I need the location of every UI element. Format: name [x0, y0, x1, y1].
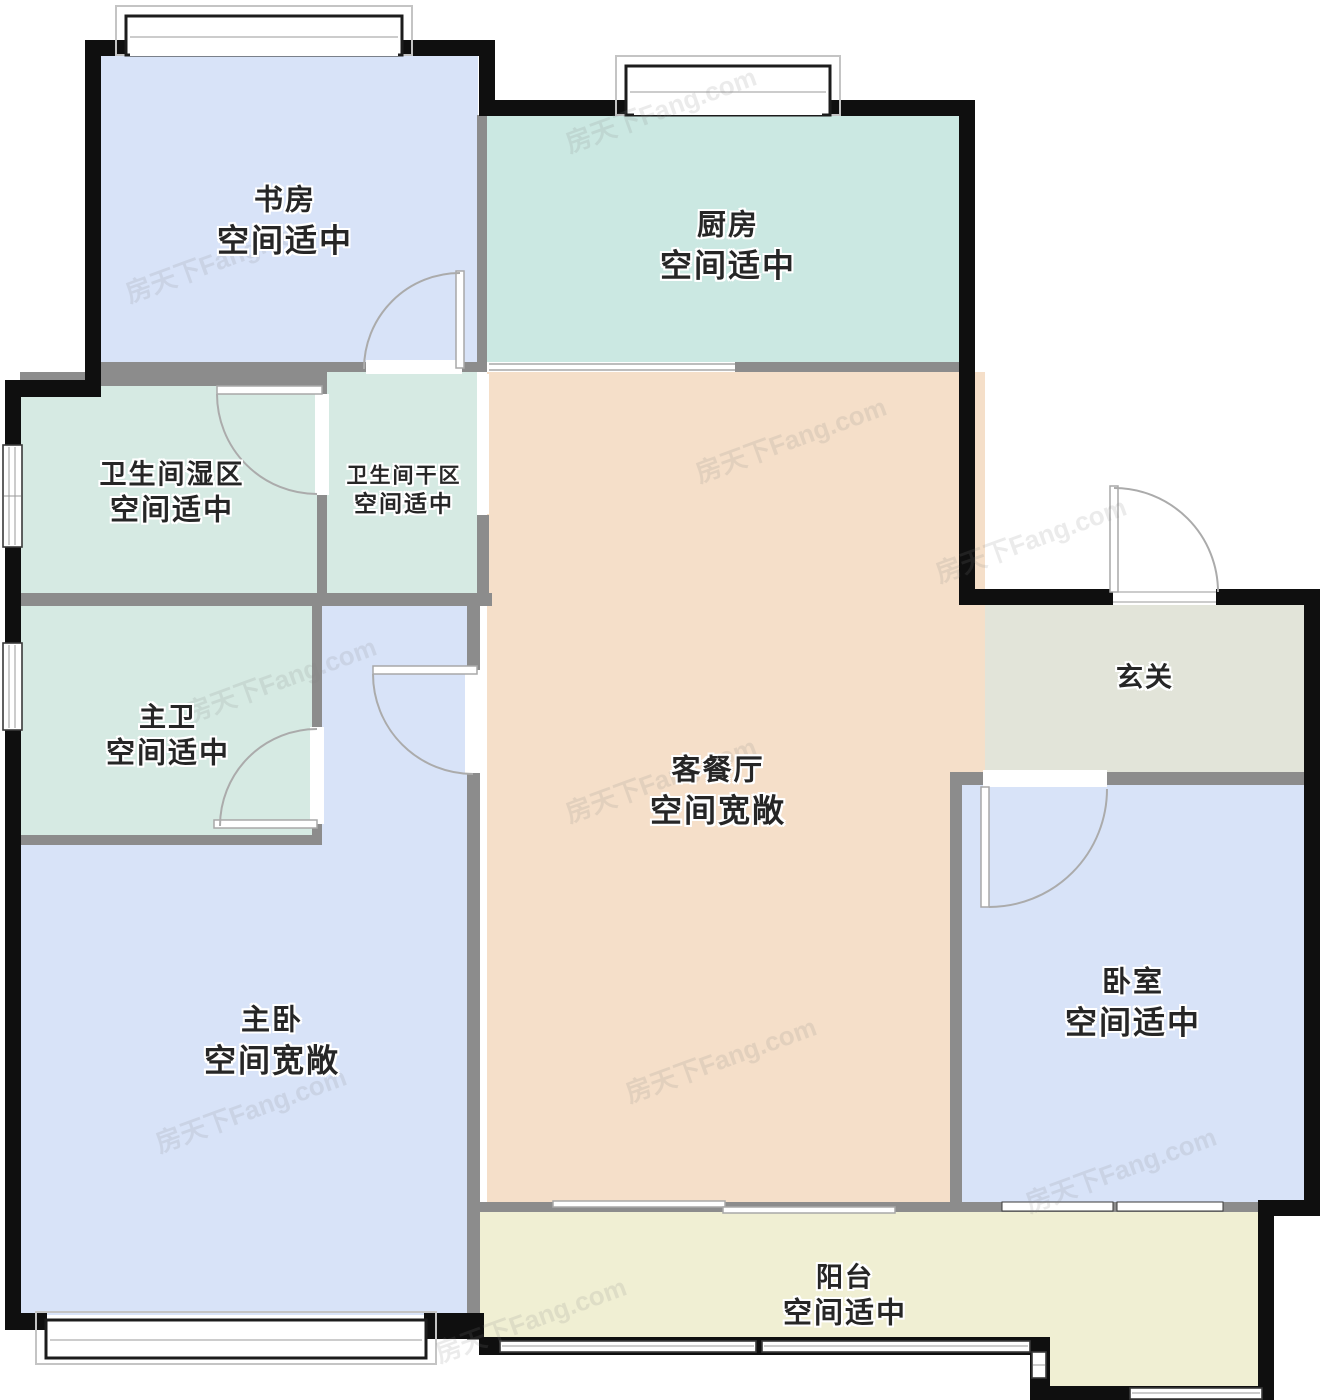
room-name: 玄关	[1116, 660, 1174, 695]
room-note: 空间适中	[106, 736, 230, 774]
window-bath-wet	[3, 445, 22, 547]
room-label-master-bath: 主卫 空间适中	[106, 701, 230, 774]
room-label-balcony: 阳台 空间适中	[783, 1261, 907, 1334]
room-balcony-ext	[1040, 1212, 1258, 1388]
room-label-bedroom: 卧室 空间适中	[1065, 964, 1201, 1043]
room-note: 空间宽敞	[204, 1040, 340, 1082]
room-name: 书房	[217, 182, 353, 220]
room-note: 空间适中	[100, 493, 245, 531]
room-label-living: 客餐厅 空间宽敞	[650, 752, 786, 831]
room-label-master-bedroom: 主卧 空间宽敞	[204, 1002, 340, 1081]
room-name: 卫生间干区	[347, 462, 462, 489]
room-label-kitchen: 厨房 空间适中	[660, 207, 796, 286]
room-name: 卧室	[1065, 964, 1201, 1002]
room-label-bath-wet: 卫生间湿区 空间适中	[100, 458, 245, 531]
room-name: 阳台	[783, 1261, 907, 1296]
room-note: 空间适中	[347, 490, 462, 520]
room-note: 空间适中	[1065, 1002, 1201, 1044]
room-label-study: 书房 空间适中	[217, 182, 353, 261]
floor-plan: 房天下Fang.com 房天下Fang.com 房天下Fang.com 房天下F…	[0, 0, 1325, 1400]
room-name: 客餐厅	[650, 752, 786, 790]
room-name: 卫生间湿区	[100, 458, 245, 493]
room-name: 厨房	[660, 207, 796, 245]
room-name: 主卫	[106, 701, 230, 736]
window-bedroom	[1002, 1202, 1223, 1211]
room-label-entry: 玄关	[1116, 660, 1174, 695]
room-note: 空间适中	[783, 1296, 907, 1334]
window-bay-study	[116, 6, 412, 56]
room-label-bath-dry: 卫生间干区 空间适中	[347, 462, 462, 519]
room-note: 空间适中	[217, 220, 353, 262]
window-bay-kitchen	[616, 56, 840, 115]
room-master-bedroom-hall	[322, 606, 467, 845]
room-note: 空间适中	[660, 245, 796, 287]
room-note: 空间宽敞	[650, 790, 786, 832]
window-master-bath	[3, 643, 22, 730]
window-bay-master-bedroom	[36, 1312, 436, 1364]
room-name: 主卧	[204, 1002, 340, 1040]
room-balcony	[480, 1212, 1040, 1341]
door-entry	[1110, 486, 1218, 605]
